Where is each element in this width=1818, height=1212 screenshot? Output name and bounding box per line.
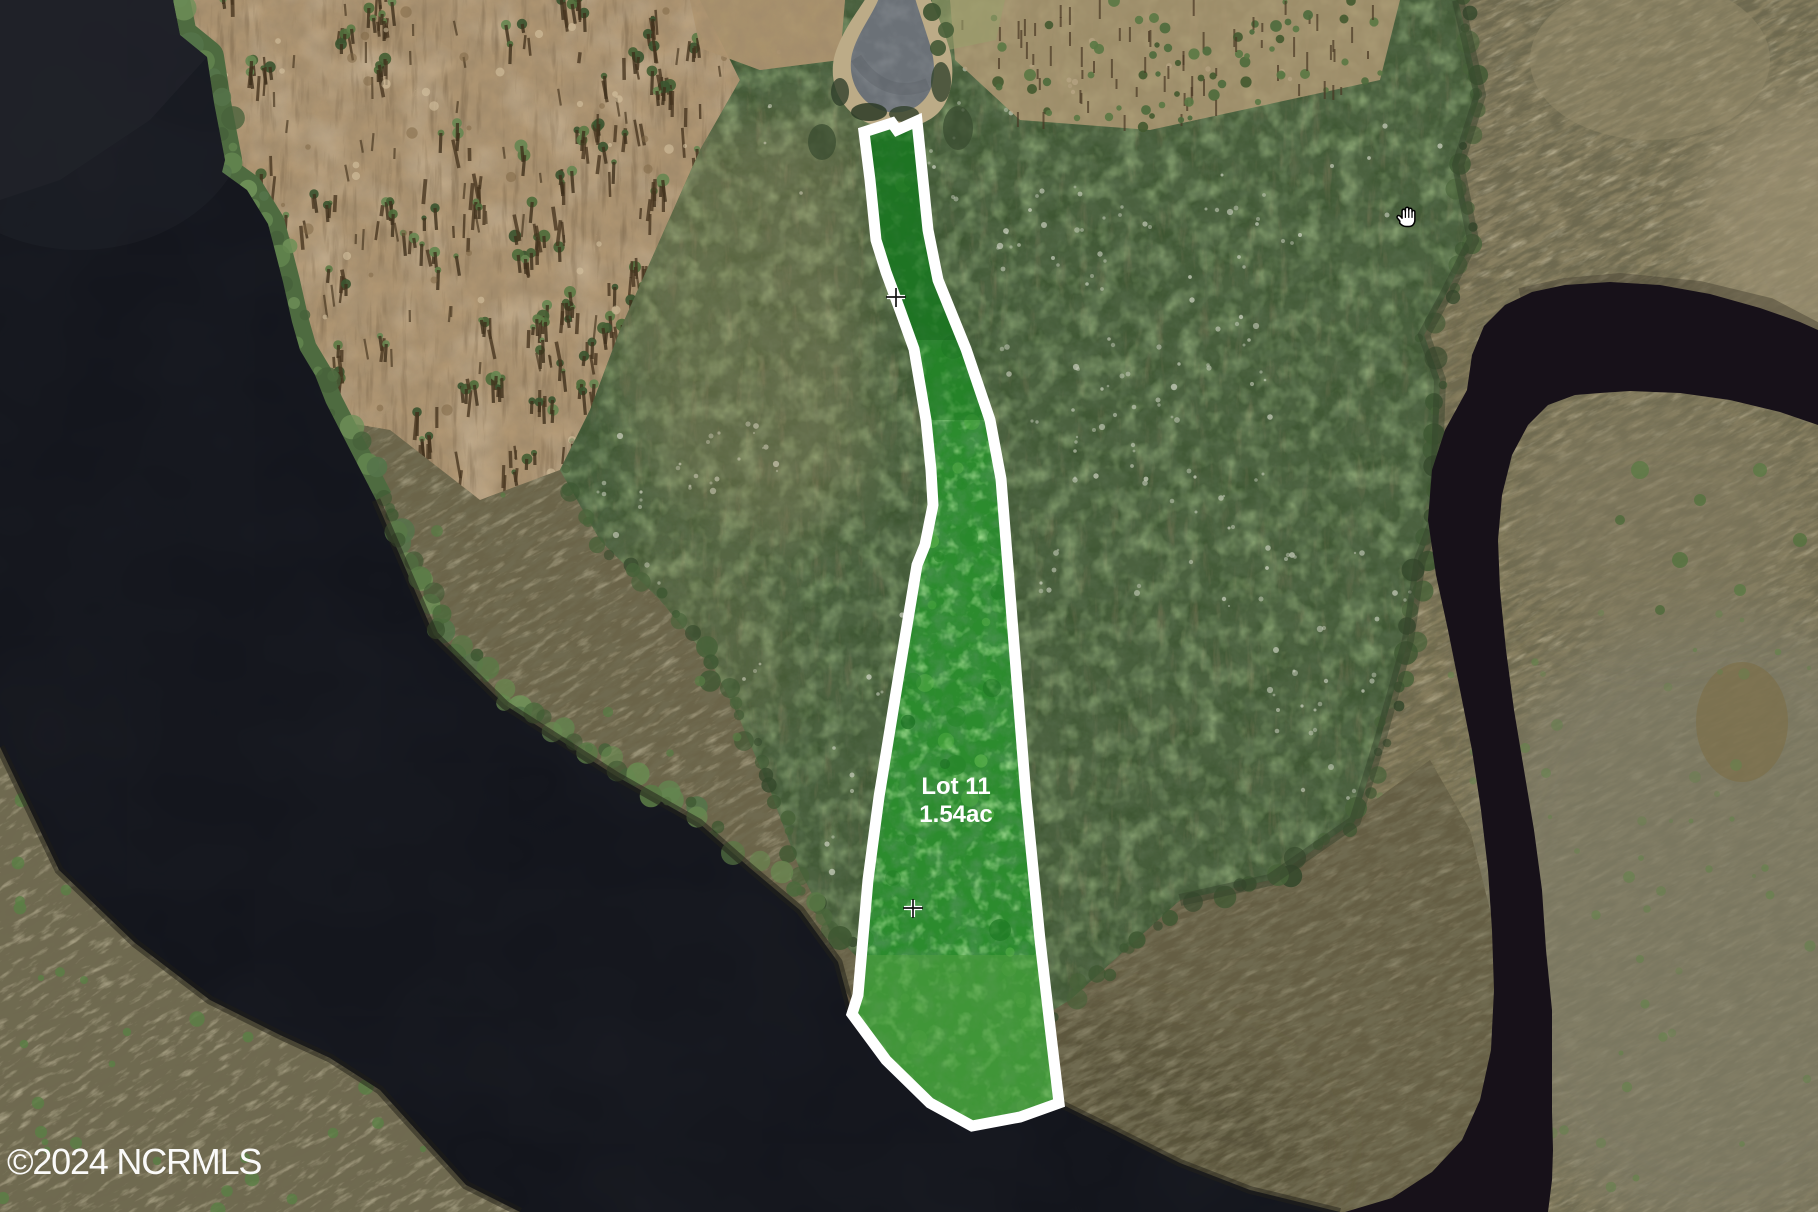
svg-text:1.54ac: 1.54ac (919, 801, 992, 828)
svg-text:©2024 NCRMLS: ©2024 NCRMLS (7, 1141, 261, 1182)
svg-text:Lot 11: Lot 11 (921, 773, 990, 800)
